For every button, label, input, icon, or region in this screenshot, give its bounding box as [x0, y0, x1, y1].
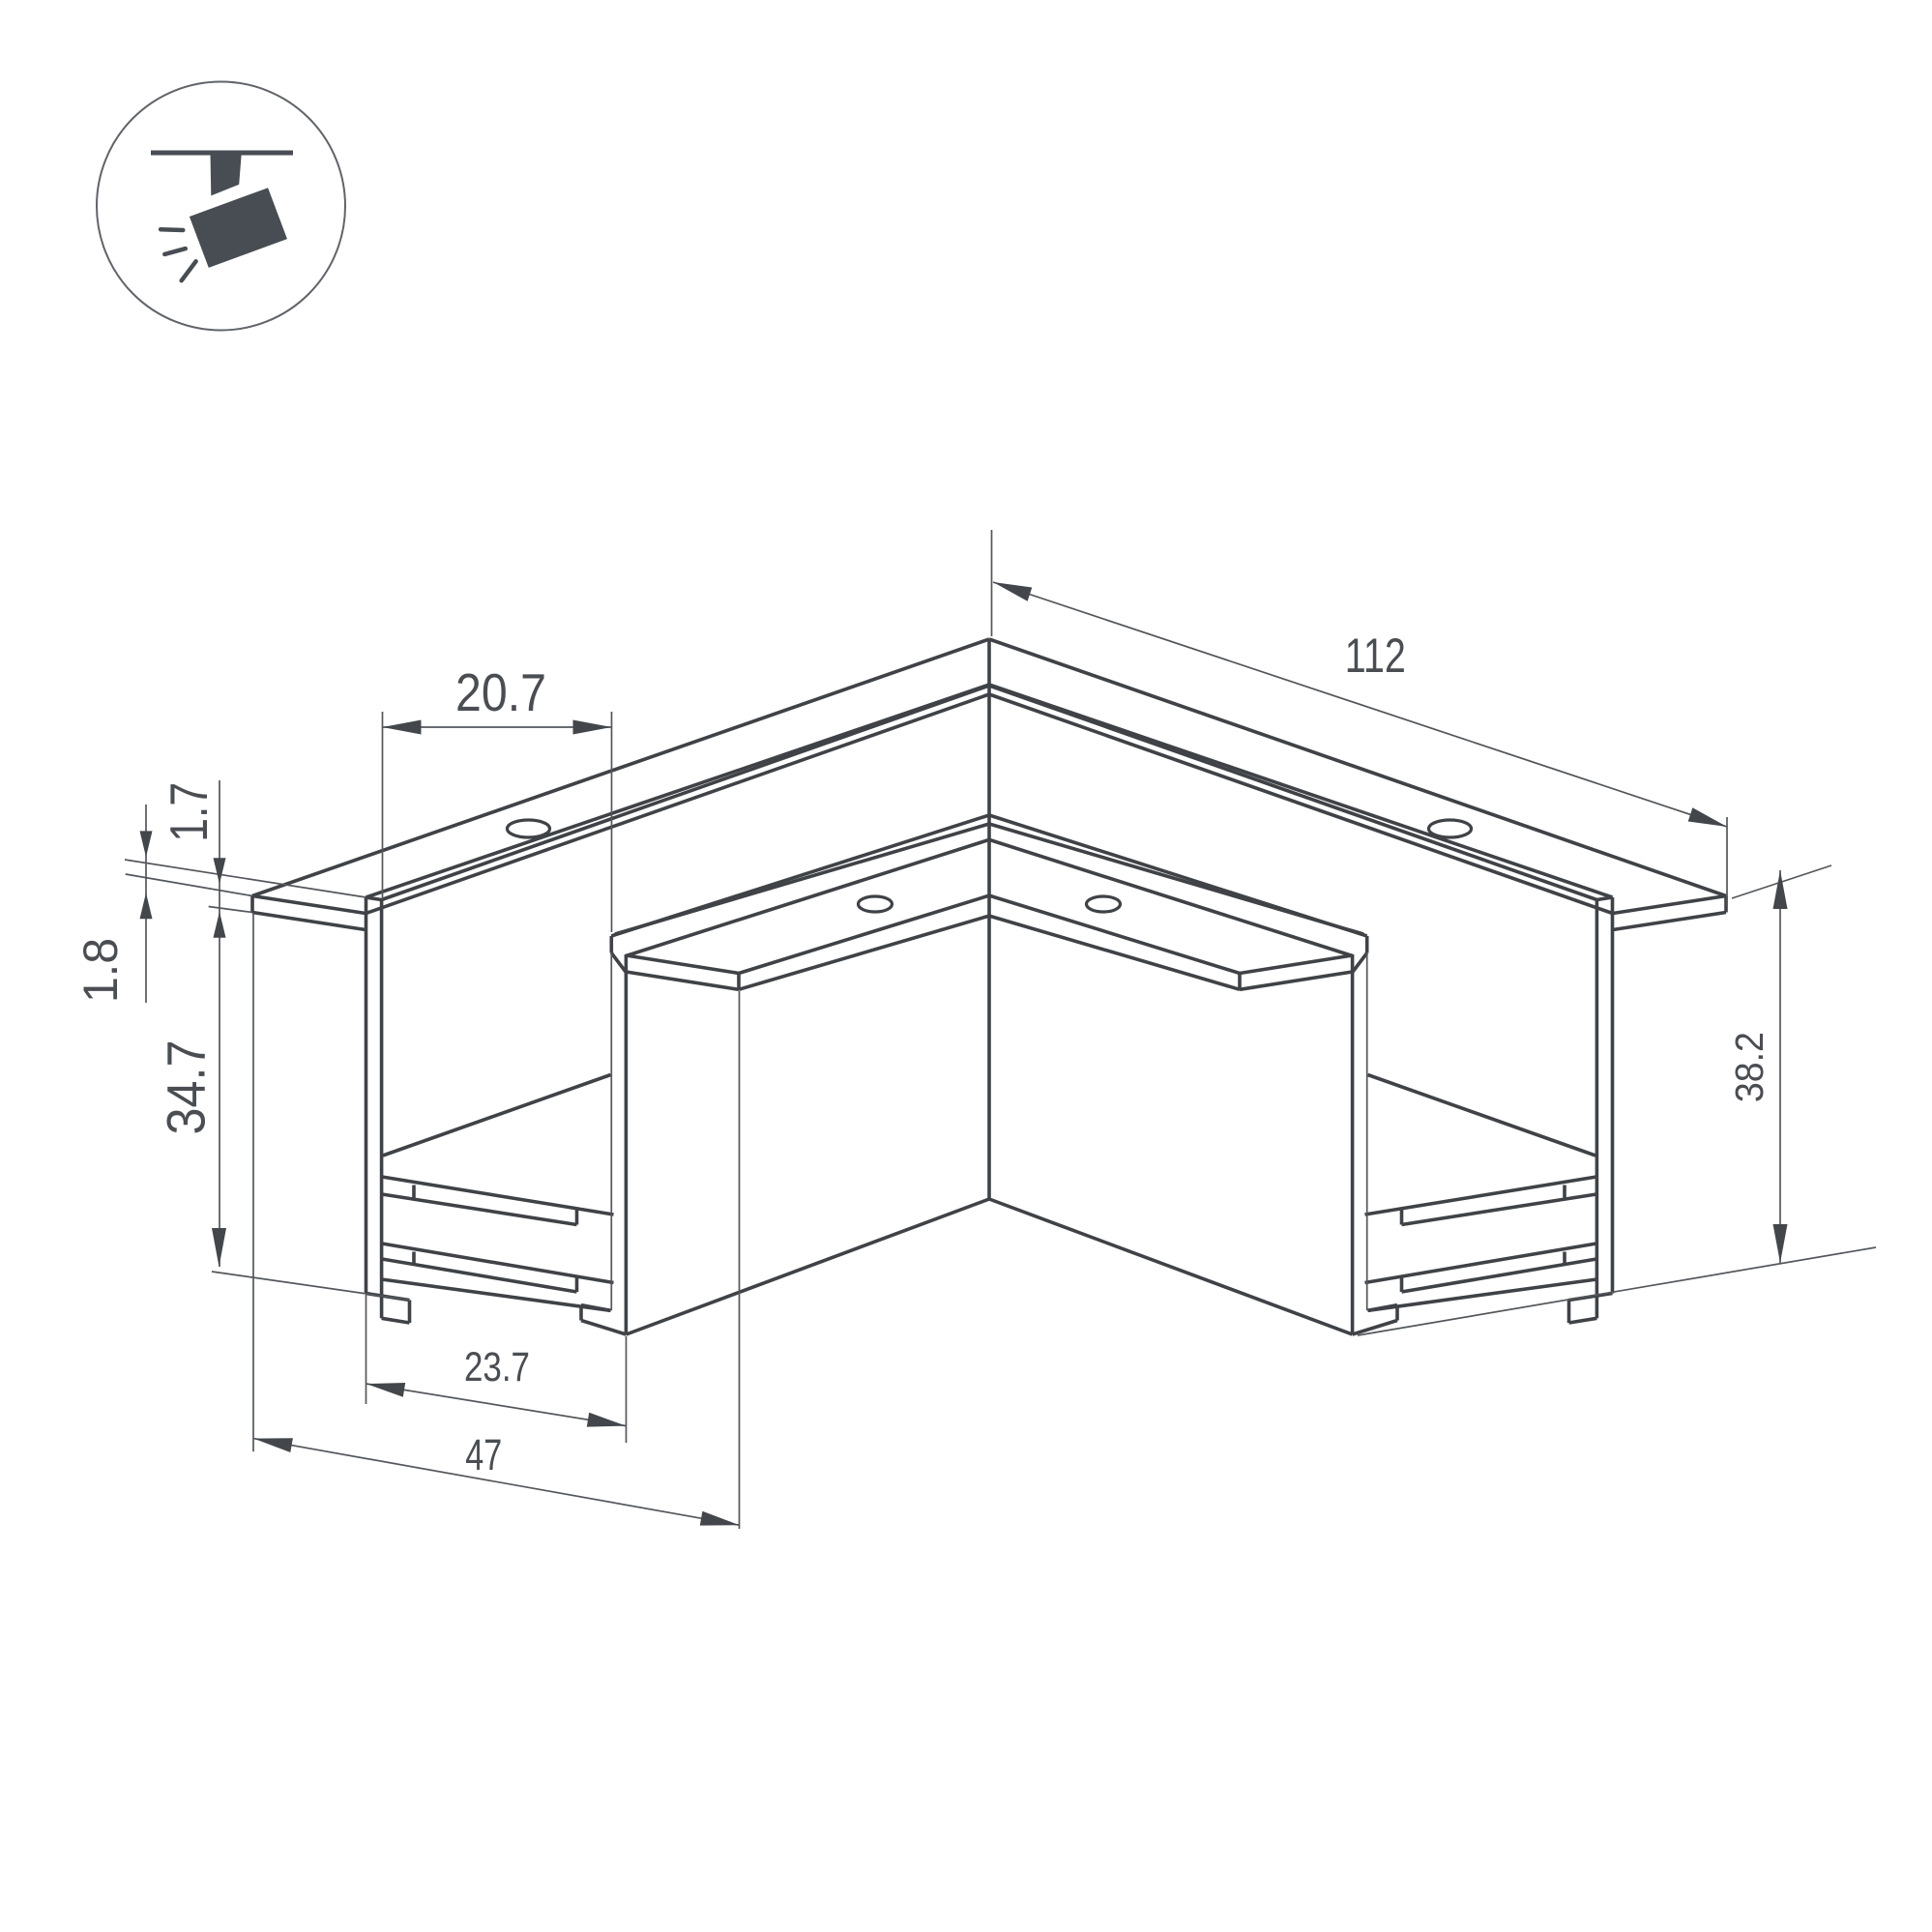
svg-text:1.8: 1.8 — [73, 938, 128, 1003]
svg-text:20.7: 20.7 — [455, 662, 546, 722]
svg-text:38.2: 38.2 — [1727, 1032, 1771, 1102]
svg-text:112: 112 — [1345, 629, 1406, 683]
svg-text:23.7: 23.7 — [464, 1344, 530, 1390]
svg-text:1.7: 1.7 — [159, 782, 219, 842]
svg-text:34.7: 34.7 — [156, 1040, 217, 1135]
svg-text:47: 47 — [465, 1430, 502, 1479]
